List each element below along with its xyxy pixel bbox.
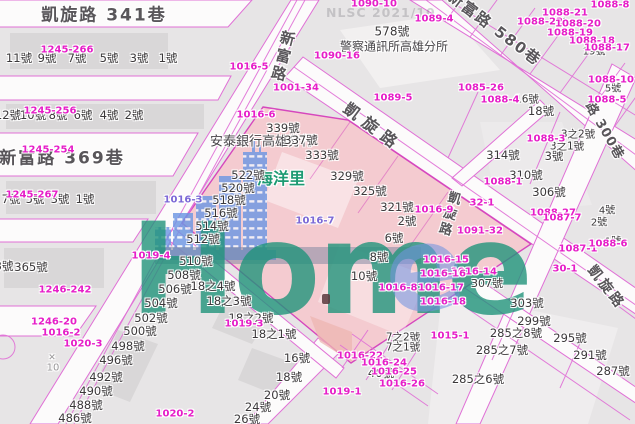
parcel-number-label: 1016-6 [237,110,276,121]
street-label: 凱旋路 [583,261,630,314]
parcel-number-label: 1089-4 [415,14,454,25]
parcel-number-label: 1246-20 [31,317,77,328]
house-number-label: 11號 [6,50,32,66]
house-number-label: 365號 [14,259,47,275]
house-number-label: 329號 [330,168,363,184]
parcel-number-label: 1090-16 [314,51,360,62]
house-number-label: 486號 [58,410,91,424]
house-number-label: 578號 [375,23,410,40]
parcel-number-label: 1016-9 [415,205,454,216]
parcel-number-label: 1088-8 [591,0,630,11]
parcel-number-label: 1245-256 [24,106,77,117]
parcel-number-label: 1085-26 [458,83,504,94]
house-number-label: 333號 [305,147,338,163]
house-number-label: 3號 [0,258,13,274]
parcel-number-label: 1019-1 [323,387,362,398]
parcel-number-label: 1016-16 [420,269,466,280]
house-number-label: 512號 [186,231,219,247]
parcel-number-label: 1016-25 [371,367,417,378]
parcel-number-label: 1016-8 [379,283,418,294]
map-annotation: 10 [47,363,60,374]
map-viewport[interactable]: NLSC 2021/10 Home e 凱旋路 341巷新富路 369巷新富路凱… [0,0,635,424]
house-number-label: 285之7號 [476,342,528,358]
house-number-label: 500號 [123,323,156,339]
house-number-label: 5號 [100,50,119,66]
house-number-label: 3之2號 [561,127,595,142]
house-number-label: 325號 [353,183,386,199]
parcel-number-label: 1020-3 [64,339,103,350]
parcel-number-label: 1016-26 [379,379,425,390]
parcel-number-label: 1088-1 [484,177,523,188]
parcel-number-label: 1088-17 [584,43,630,54]
parcel-number-label: 32-1 [469,198,494,209]
street-label: 凱旋路 341巷 [41,1,166,26]
parcel-number-label: 1015-1 [431,331,470,342]
house-number-label: 6號 [385,230,404,246]
parcel-number-label: 1245-266 [41,45,94,56]
house-number-label: 287號 [596,363,629,379]
parcel-number-label: 1088-10 [588,75,634,86]
house-number-label: 285之6號 [452,371,504,387]
house-number-label: 337號 [284,132,317,148]
parcel-number-label: 1016-5 [230,62,269,73]
house-number-label: 496號 [99,352,132,368]
house-number-label: 18之3號 [207,293,252,309]
parcel-number-label: 1088-5 [588,95,627,106]
parcel-number-label: 1090-10 [351,0,397,10]
map-labels-layer: 凱旋路 341巷新富路 369巷新富路凱旋路新富路 580巷路 300巷凱旋路凱… [0,0,635,424]
street-label: 凱旋路 [339,96,409,157]
house-number-label: 2號 [125,107,144,123]
parcel-number-label: 1019-4 [132,251,171,262]
parcel-number-label: 1246-242 [39,285,92,296]
parcel-number-label: 1245-267 [6,190,59,201]
house-number-label: 295號 [553,330,586,346]
house-number-label: 314號 [486,147,519,163]
parcel-number-label: 30-1 [552,264,577,275]
parcel-number-label: 1245-254 [22,145,75,156]
parcel-number-label: 1016-7 [296,216,335,227]
house-number-label: 291號 [573,347,606,363]
house-number-label: 285之8號 [490,325,542,341]
house-number-label: 16號 [284,350,310,366]
parcel-number-label: 1089-5 [374,93,413,104]
house-number-label: 2號 [591,214,607,229]
house-number-label: 1號 [76,191,95,207]
parcel-number-label: 1016-3 [164,195,203,206]
parcel-number-label: 1088-3 [527,134,566,145]
parcel-number-label: 1016-17 [418,283,464,294]
parcel-number-label: 1091-32 [457,226,503,237]
parcel-number-label: 1016-18 [420,297,466,308]
parcel-number-label: 1088-4 [481,95,520,106]
house-number-label: 8號 [370,249,389,265]
map-annotation: ✕ [48,353,56,363]
parcel-number-label: 1016-15 [423,255,469,266]
house-number-label: 7之1號 [386,340,420,355]
parcel-number-label: 1016-2 [42,328,81,339]
parcel-number-label: 1088-6 [589,239,628,250]
house-number-label: 12號 [0,107,21,123]
parcel-number-label: 1001-34 [273,83,319,94]
house-number-label: 504號 [144,295,177,311]
house-number-label: 18之4號 [191,278,236,294]
street-label: 新富路 [266,28,299,85]
house-number-label: 4號 [100,107,119,123]
parcel-number-label: 1019-3 [225,319,264,330]
house-number-label: 306號 [532,184,565,200]
house-number-label: 303號 [510,295,543,311]
house-number-label: 3號 [130,50,149,66]
street-label: 新富路 580巷 [444,0,547,70]
house-number-label: 18號 [276,369,302,385]
parcel-number-label: 1087-7 [543,213,582,224]
parcel-number-label: 1020-2 [156,409,195,420]
house-number-label: 10號 [351,268,377,284]
house-number-label: 26號 [234,411,260,424]
house-number-label: 1號 [159,50,178,66]
